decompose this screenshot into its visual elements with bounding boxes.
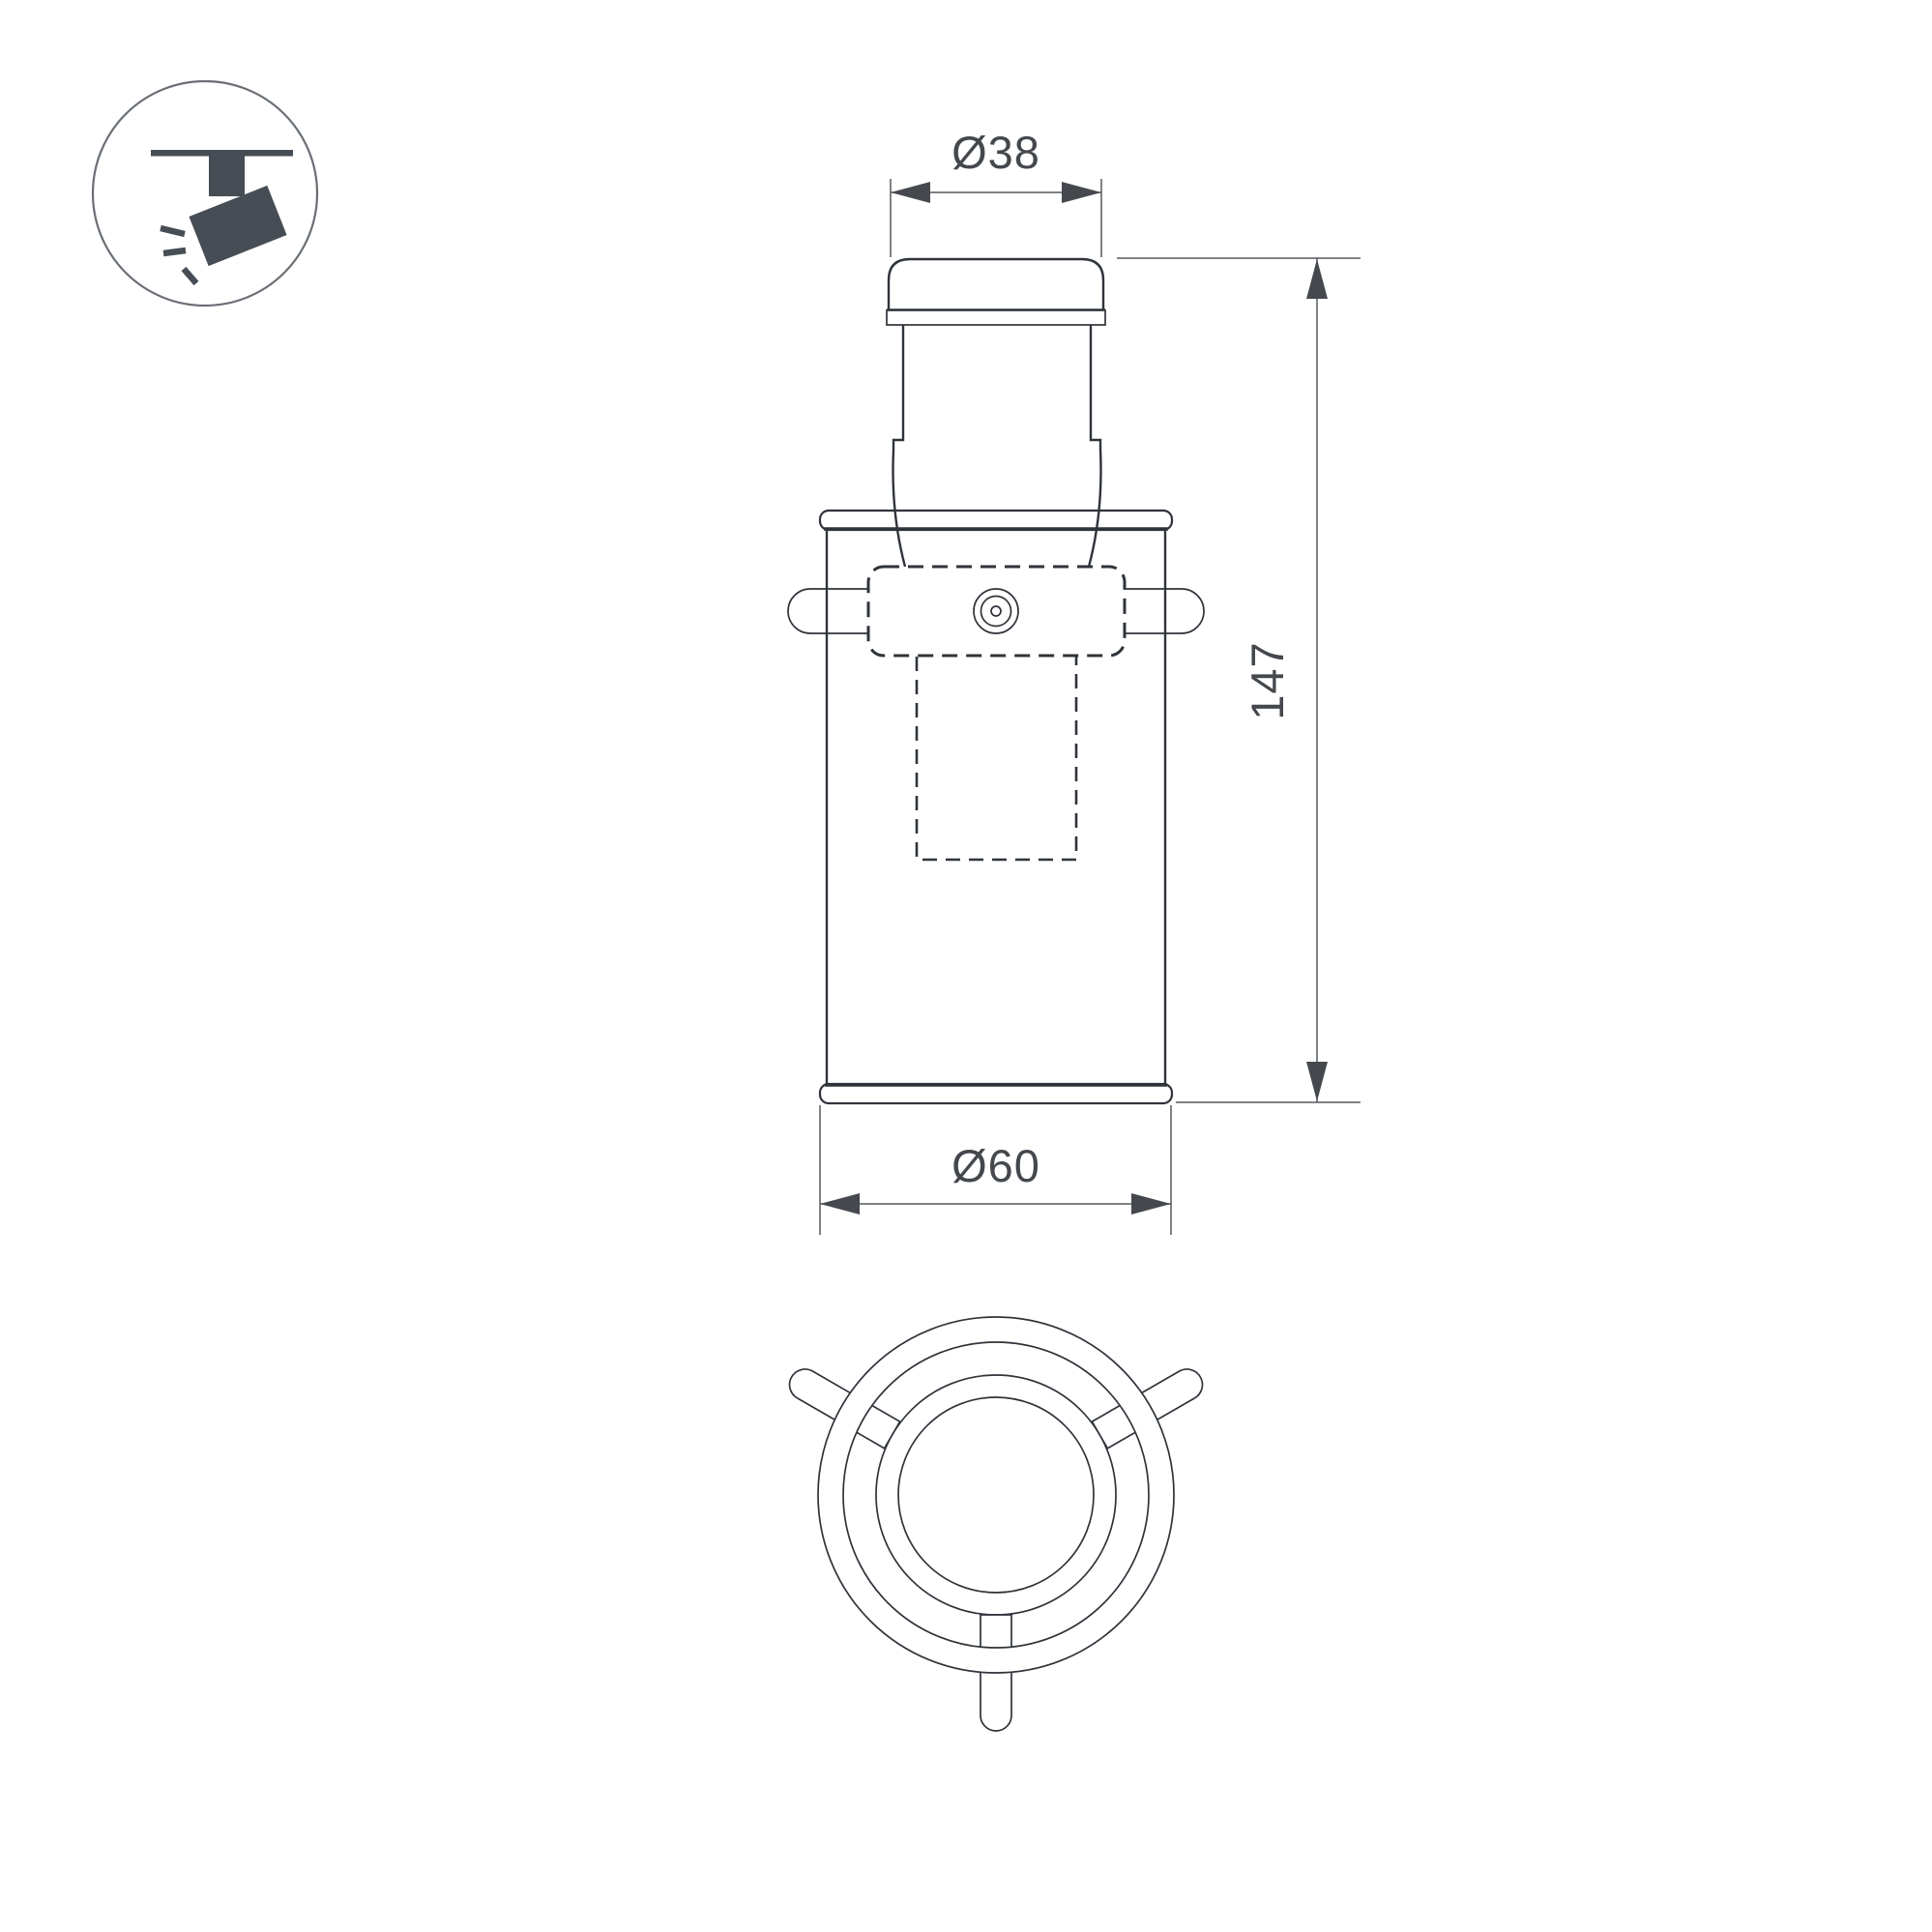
inner-ring [898,1397,1094,1593]
technical-drawing-page: Ø38 147 Ø60 [0,0,1932,1932]
dim-bottom-diameter-label: Ø60 [951,1140,1040,1191]
badge-circle [93,81,317,306]
arrow-right-icon [1131,1193,1171,1215]
inner-module-hidden-outline [917,657,1076,860]
arrow-up-icon [1306,259,1328,299]
arrow-left-icon [820,1193,860,1215]
cap-collar [887,310,1105,325]
dimension-top-diameter: Ø38 [891,127,1101,257]
dim-top-diameter-label: Ø38 [951,127,1040,178]
front-view [788,259,1204,1103]
arrow-left-icon [891,182,930,203]
body-bottom-flange [820,1084,1172,1103]
bottom-view [784,1317,1209,1731]
track-adapter-cap [889,259,1103,310]
third-ring [876,1375,1116,1615]
left-pin [788,589,875,633]
body-top-flange [820,511,1172,530]
gearbox-hidden-outline [868,567,1125,656]
dim-height-label: 147 [1242,641,1293,719]
arrow-right-icon [1062,182,1101,203]
right-pin [1117,589,1204,633]
dimension-height: 147 [1117,258,1361,1102]
dimension-bottom-diameter: Ø60 [820,1105,1171,1235]
arrow-down-icon [1306,1062,1328,1101]
track-light-badge [93,81,317,306]
